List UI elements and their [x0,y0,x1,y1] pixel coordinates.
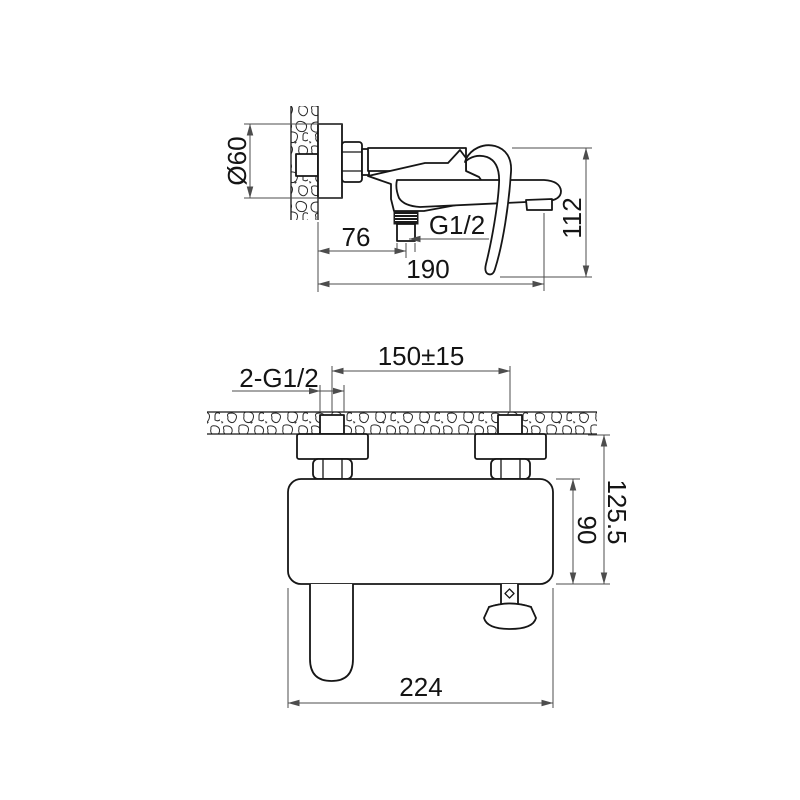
mounting-nut-front-right [491,459,530,479]
inlet-connector-right [498,415,522,434]
dimension-inlet-thread: 2-G1/2 [232,363,344,412]
inlet-connector-left [320,415,344,434]
diverter-knob-front [484,584,536,629]
mixer-body-front [288,479,553,584]
mounting-nut-front-left [313,459,352,479]
mounting-nut-side [342,142,369,182]
dimension-escutcheon-diameter-label: Ø60 [222,136,252,185]
dimension-overall-width-label: 224 [399,672,442,702]
dimension-body-height-label: 90 [572,516,602,545]
technical-drawing-canvas: Ø60 76 G1/2 190 112 [0,0,800,800]
dimension-height-below-wall-label: 125.5 [602,479,632,544]
dimension-overall-height: 112 [500,148,592,277]
dimension-inlet-thread-label: 2-G1/2 [239,363,319,393]
spout-front [310,584,353,681]
dimension-inlet-spacing: 150±15 [332,341,510,412]
dimension-wall-to-outlet: 76 [318,222,406,292]
dimension-wall-to-spout-tip-label: 190 [406,254,449,284]
wall-section-front [207,412,597,434]
escutcheon-front-left [297,434,368,459]
dimension-body-height: 90 [556,479,602,584]
aerator-side [526,199,552,210]
dimension-height-below-wall: 125.5 [556,435,632,584]
outlet-thread-side [394,211,418,241]
dimension-inlet-spacing-label: 150±15 [378,341,465,371]
side-view: Ø60 76 G1/2 190 112 [222,106,592,292]
escutcheon-side [318,124,342,198]
dimension-overall-height-label: 112 [557,197,587,238]
escutcheon-front-right [475,434,546,459]
front-view: 150±15 2-G1/2 125.5 90 224 [207,341,632,708]
faucet-dimension-drawing: Ø60 76 G1/2 190 112 [0,0,800,800]
dimension-outlet-thread-label: G1/2 [429,210,485,240]
inwall-connector-side [296,154,318,176]
dimension-wall-to-outlet-label: 76 [342,222,371,252]
